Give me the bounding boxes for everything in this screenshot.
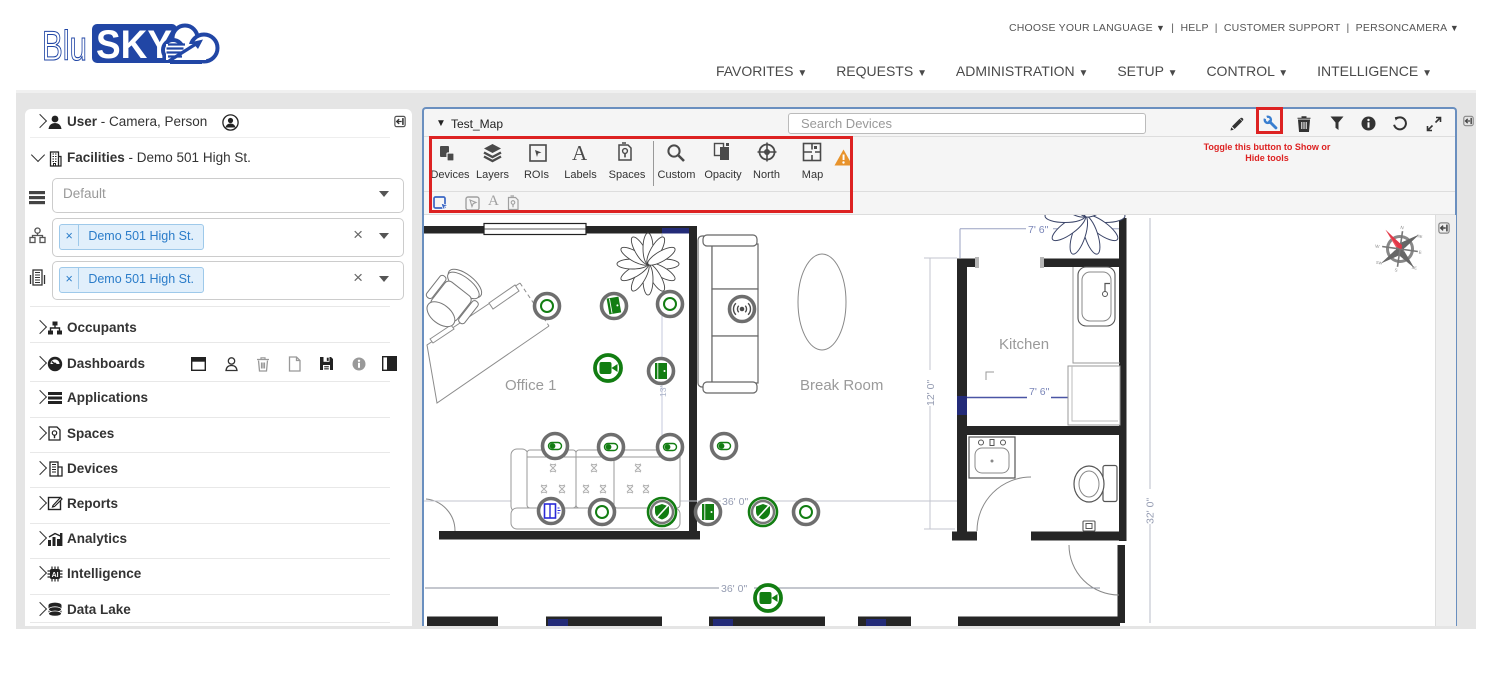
svg-text:AI: AI <box>52 572 59 579</box>
svg-text:E: E <box>1418 250 1422 255</box>
svg-text:Blu: Blu <box>42 22 87 66</box>
svg-text:7' 6": 7' 6" <box>1028 224 1049 236</box>
svg-text:7' 6": 7' 6" <box>1029 386 1050 398</box>
svg-text:NE: NE <box>1417 233 1424 239</box>
svg-text:S: S <box>1394 267 1398 272</box>
svg-text:N: N <box>1400 225 1404 230</box>
svg-text:36' 0": 36' 0" <box>721 583 747 595</box>
svg-text:12' 0": 12' 0" <box>925 380 937 406</box>
svg-text:SKY: SKY <box>96 23 172 66</box>
svg-text:36' 0": 36' 0" <box>722 496 748 508</box>
svg-text:SW: SW <box>1376 260 1383 266</box>
svg-text:Kitchen: Kitchen <box>999 336 1049 353</box>
svg-text:W: W <box>1375 244 1381 250</box>
svg-text:Break Room: Break Room <box>800 377 883 394</box>
svg-text:Office 1: Office 1 <box>505 377 556 394</box>
svg-text:SE: SE <box>1411 265 1417 271</box>
svg-text:32' 0": 32' 0" <box>1145 498 1157 524</box>
